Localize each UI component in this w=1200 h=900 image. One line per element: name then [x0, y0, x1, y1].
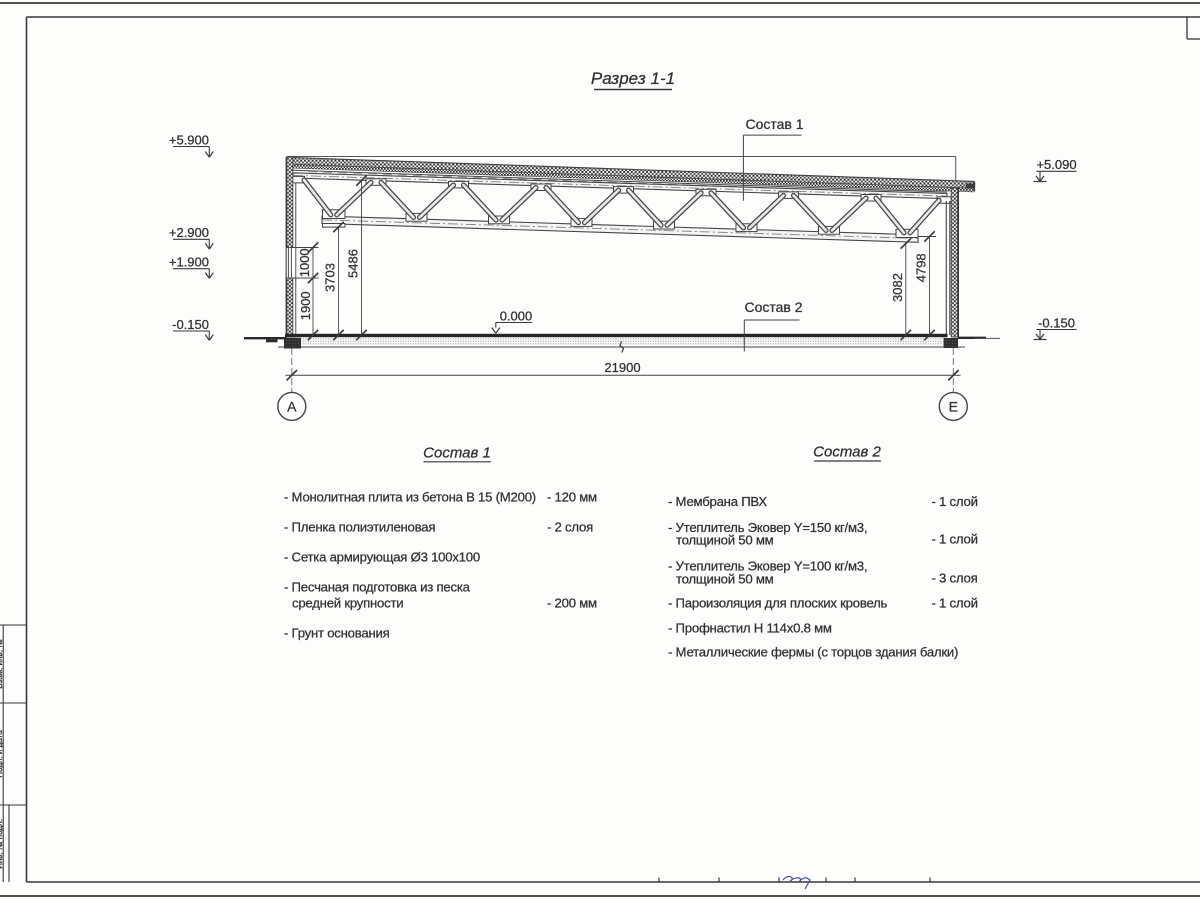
- svg-text:А: А: [287, 398, 297, 414]
- svg-text:Состав 1: Состав 1: [745, 116, 803, 132]
- svg-text:1000: 1000: [297, 248, 312, 277]
- svg-text:- 1 слой: - 1 слой: [932, 596, 978, 611]
- svg-text:- Грунт основания: - Грунт основания: [284, 626, 390, 641]
- svg-text:- 1 слой: - 1 слой: [932, 494, 978, 509]
- svg-text:- 3 слоя: - 3 слоя: [932, 571, 978, 586]
- svg-text:Подп. и дата: Подп. и дата: [0, 730, 4, 778]
- svg-text:3703: 3703: [323, 263, 338, 292]
- svg-text:Состав 1: Состав 1: [423, 445, 491, 462]
- svg-text:+5.900: +5.900: [169, 132, 209, 147]
- svg-text:- Мембрана ПВХ: - Мембрана ПВХ: [668, 494, 767, 509]
- svg-text:- 2 слоя: - 2 слоя: [547, 520, 593, 535]
- svg-text:- Пароизоляция для плоских кро: - Пароизоляция для плоских кровель: [668, 596, 888, 611]
- svg-text:21900: 21900: [604, 360, 640, 375]
- svg-text:- Профнастил Н 114х0.8 мм: - Профнастил Н 114х0.8 мм: [668, 621, 832, 636]
- svg-text:Разрез 1-1: Разрез 1-1: [591, 69, 675, 88]
- svg-text:-0.150: -0.150: [172, 317, 209, 332]
- svg-text:толщиной 50 мм: толщиной 50 мм: [676, 533, 774, 548]
- svg-text:Состав 2: Состав 2: [813, 444, 881, 461]
- svg-text:- Сетка армирующая Ø3 100х100: - Сетка армирующая Ø3 100х100: [284, 550, 480, 565]
- svg-text:- Монолитная плита из бетона В: - Монолитная плита из бетона В 15 (М200): [284, 490, 536, 505]
- svg-text:0.000: 0.000: [500, 308, 533, 323]
- svg-text:- 120 мм: - 120 мм: [547, 490, 597, 505]
- svg-text:5486: 5486: [346, 249, 361, 278]
- svg-text:- 200 мм: - 200 мм: [547, 596, 597, 611]
- svg-text:Состав 2: Состав 2: [744, 299, 802, 315]
- svg-text:- 1 слой: - 1 слой: [932, 532, 978, 547]
- svg-text:средней крупности: средней крупности: [292, 596, 403, 611]
- svg-text:толщиной 50 мм: толщиной 50 мм: [676, 572, 774, 587]
- svg-text:Е: Е: [949, 398, 958, 414]
- svg-text:1900: 1900: [298, 291, 313, 320]
- svg-text:+2.900: +2.900: [169, 225, 209, 240]
- svg-text:Инв. № подл.: Инв. № подл.: [0, 819, 4, 869]
- svg-text:Взам. инв. №: Взам. инв. №: [0, 639, 4, 689]
- svg-text:+5.090: +5.090: [1036, 157, 1076, 172]
- svg-text:- Песчаная подготовка из песка: - Песчаная подготовка из песка: [284, 580, 471, 595]
- svg-text:- Металлические фермы (с торцо: - Металлические фермы (с торцов здания б…: [668, 645, 958, 660]
- svg-text:- Пленка полиэтиленовая: - Пленка полиэтиленовая: [284, 520, 435, 535]
- svg-text:-0.150: -0.150: [1038, 315, 1075, 330]
- svg-text:+1.900: +1.900: [169, 255, 209, 270]
- svg-text:4798: 4798: [914, 253, 929, 282]
- svg-text:3082: 3082: [890, 273, 905, 302]
